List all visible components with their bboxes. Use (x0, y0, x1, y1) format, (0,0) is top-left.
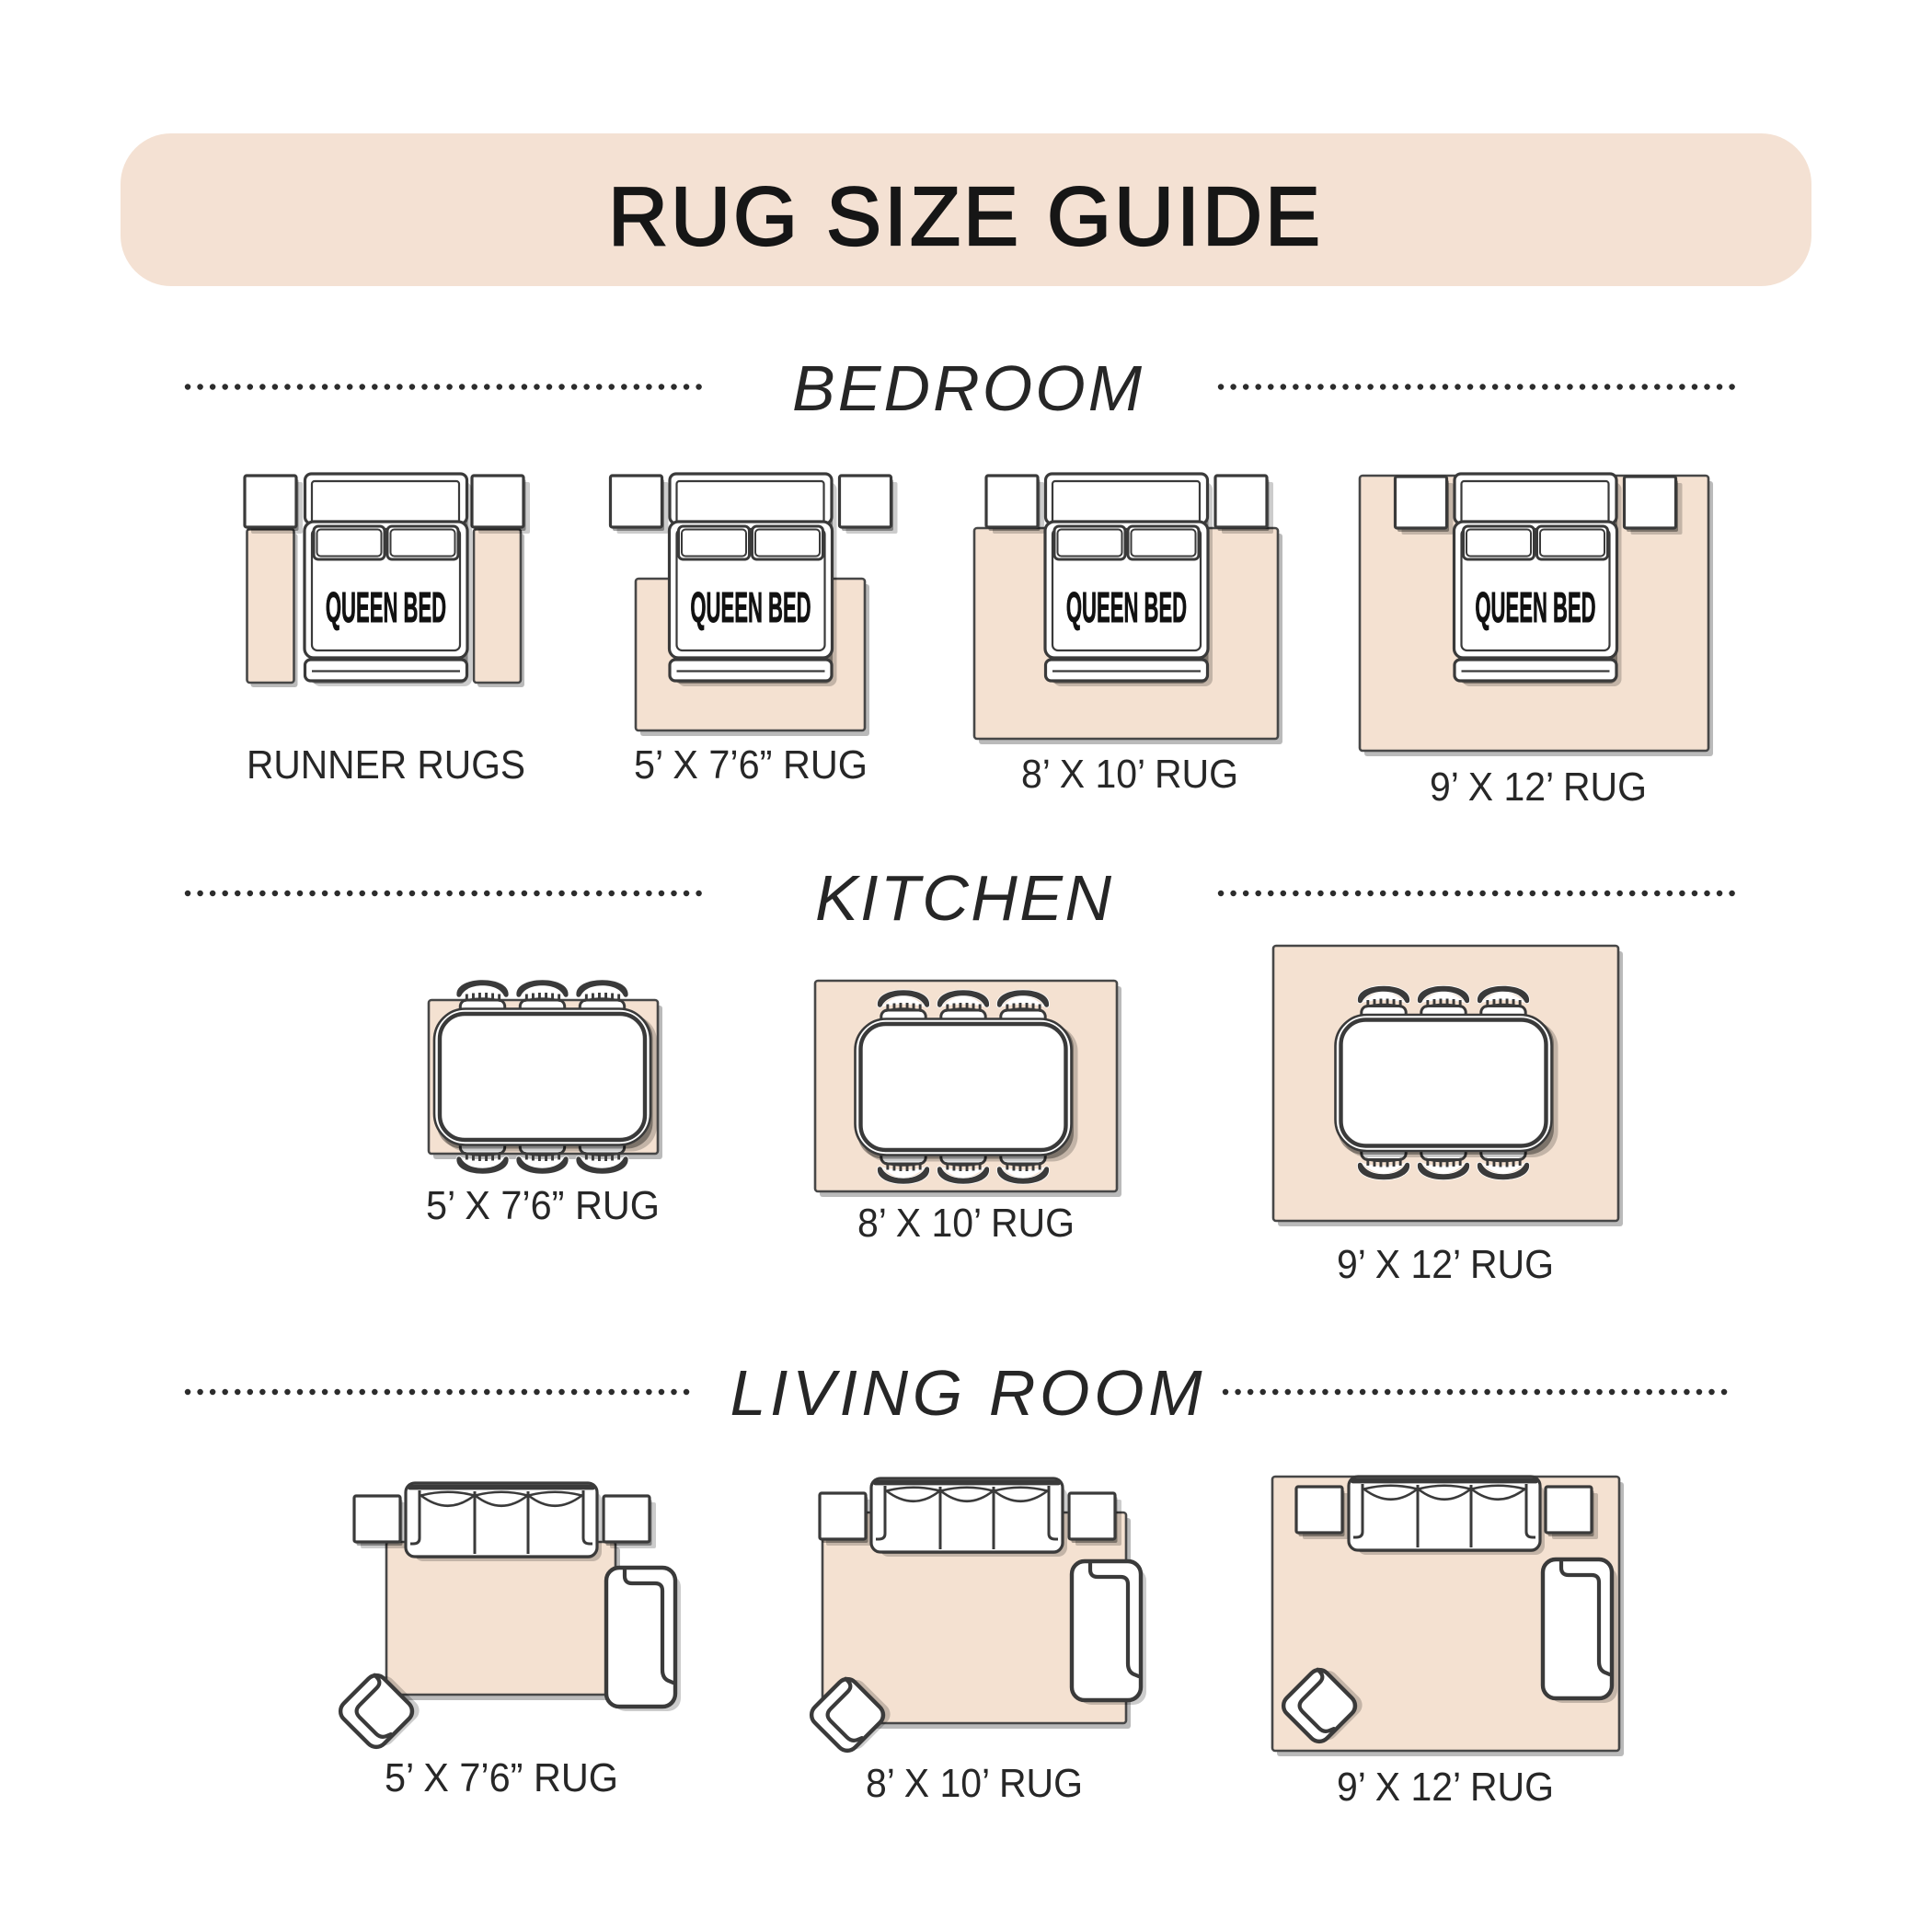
svg-text:5’ X 7’6” RUG: 5’ X 7’6” RUG (426, 1183, 660, 1228)
svg-text:8’ X 10’ RUG: 8’ X 10’ RUG (1021, 752, 1238, 797)
svg-text:5’ X 7’6” RUG: 5’ X 7’6” RUG (385, 1755, 618, 1800)
svg-text:LIVING ROOM: LIVING ROOM (730, 1357, 1203, 1429)
svg-text:9’ X 12’ RUG: 9’ X 12’ RUG (1337, 1242, 1554, 1287)
svg-text:8’ X 10’ RUG: 8’ X 10’ RUG (857, 1201, 1075, 1246)
svg-text:RUNNER RUGS: RUNNER RUGS (247, 742, 525, 788)
svg-text:9’ X 12’ RUG: 9’ X 12’ RUG (1430, 765, 1647, 810)
svg-text:BEDROOM: BEDROOM (792, 352, 1143, 424)
svg-text:5’ X 7’6” RUG: 5’ X 7’6” RUG (634, 742, 868, 788)
svg-text:KITCHEN: KITCHEN (815, 862, 1111, 934)
svg-text:RUG SIZE GUIDE: RUG SIZE GUIDE (608, 171, 1320, 263)
svg-text:8’ X 10’ RUG: 8’ X 10’ RUG (866, 1761, 1083, 1806)
svg-text:9’ X 12’ RUG: 9’ X 12’ RUG (1337, 1765, 1554, 1810)
